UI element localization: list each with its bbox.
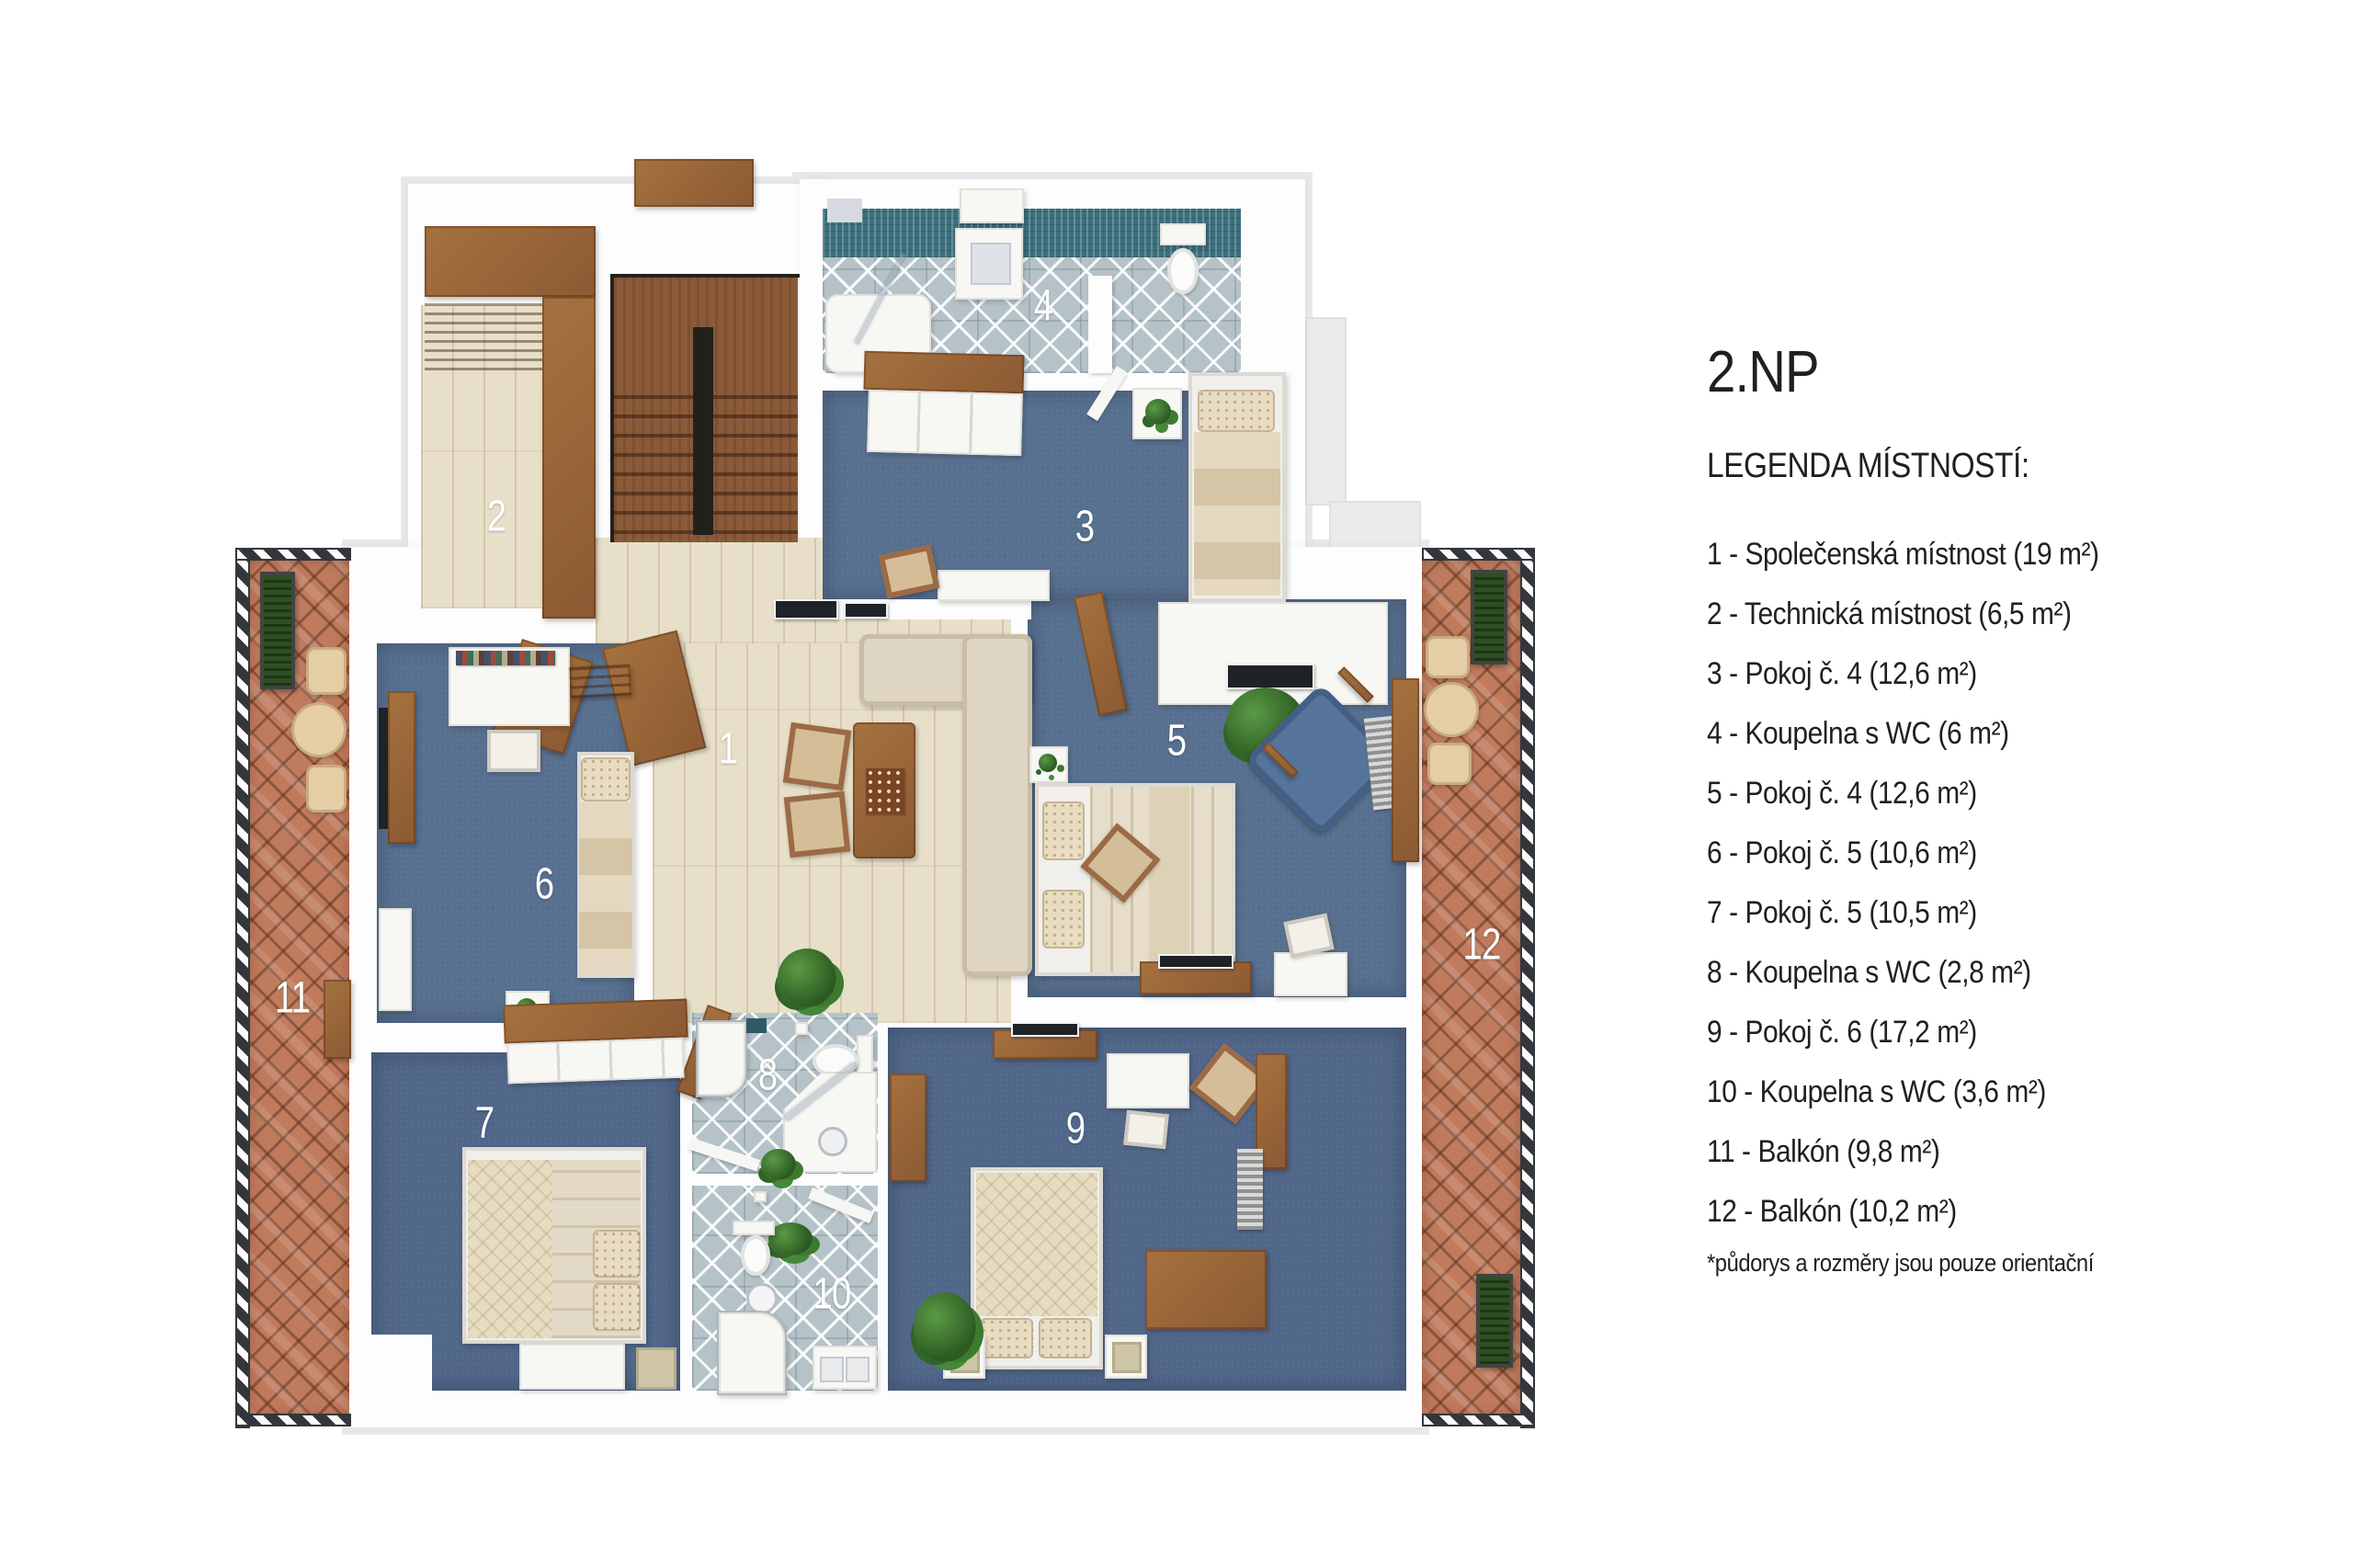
room-label-8: 8 <box>758 1051 778 1101</box>
toilet <box>1167 248 1199 294</box>
plant <box>1145 399 1171 425</box>
balcony-bench <box>324 980 351 1059</box>
wall <box>371 1335 432 1391</box>
page-title: 2.NP <box>1707 342 2099 401</box>
stair-railing <box>610 274 614 542</box>
legend-item-11: 11 - Balkón (9,8 m²) <box>1707 1122 2099 1182</box>
room-label-11: 11 <box>275 973 310 1024</box>
legend-item-1: 1 - Společenská místnost (19 m²) <box>1707 525 2099 585</box>
legend-item-4: 4 - Koupelna s WC (6 m²) <box>1707 704 2099 764</box>
room-label-2: 2 <box>487 492 506 542</box>
wardrobe <box>863 351 1024 394</box>
desk <box>1107 1053 1189 1108</box>
tv <box>844 602 888 619</box>
balcony-railing <box>235 1414 351 1426</box>
legend-item-2: 2 - Technická místnost (6,5 m²) <box>1707 585 2099 644</box>
plant <box>778 949 836 1007</box>
legend-item-6: 6 - Pokoj č. 5 (10,6 m²) <box>1707 824 2099 883</box>
room-label-10: 10 <box>813 1269 850 1320</box>
toilet-tank <box>1160 223 1206 245</box>
legend-item-3: 3 - Pokoj č. 4 (12,6 m²) <box>1707 644 2099 704</box>
room-label-1: 1 <box>719 724 738 775</box>
wardrobe-doors <box>506 1038 684 1085</box>
shower <box>717 1311 787 1395</box>
wall-cabinet <box>634 159 754 207</box>
stair-railing <box>693 327 713 535</box>
washbasin <box>846 1357 870 1382</box>
towel-rail <box>827 199 862 222</box>
balcony-railing <box>1422 1414 1535 1426</box>
floor-plan: 1 2 3 4 5 6 7 8 9 10 11 12 <box>0 0 1618 1568</box>
planter <box>1471 570 1507 665</box>
bed-pillow <box>593 1230 641 1278</box>
floor-mat <box>636 1347 676 1390</box>
storage-chest <box>1145 1250 1267 1329</box>
floorplan-page: 1 2 3 4 5 6 7 8 9 10 11 12 2.NP LEGENDA … <box>0 0 2353 1568</box>
room-label-5: 5 <box>1167 716 1187 767</box>
planter <box>260 572 295 689</box>
legend-item-12: 12 - Balkón (10,2 m²) <box>1707 1182 2099 1242</box>
round-table <box>291 702 347 757</box>
balcony-railing <box>1422 548 1535 561</box>
tv <box>1158 954 1233 969</box>
plant <box>761 1149 796 1180</box>
partition-wall <box>1088 276 1112 373</box>
game-board <box>866 768 904 814</box>
bed-duvet <box>1194 432 1280 596</box>
bed-duvet <box>468 1160 552 1338</box>
bed-pillow <box>1039 1318 1092 1358</box>
plant <box>768 1222 813 1256</box>
roof-step <box>1305 317 1347 506</box>
bed-duvet <box>976 1173 1097 1316</box>
bed-pillow <box>980 1318 1033 1358</box>
legend-panel: 2.NP LEGENDA MÍSTNOSTÍ: 1 - Společenská … <box>1707 342 2153 1278</box>
legend-item-7: 7 - Pokoj č. 5 (10,5 m²) <box>1707 883 2099 943</box>
dresser <box>379 908 412 1011</box>
tv <box>1226 664 1314 689</box>
towel-ring <box>754 1191 767 1202</box>
chair <box>784 791 851 858</box>
legend-item-8: 8 - Koupelna s WC (2,8 m²) <box>1707 943 2099 1003</box>
planter <box>1476 1274 1513 1368</box>
bed-throw <box>1149 787 1189 972</box>
floor-mat <box>1112 1342 1142 1373</box>
tv <box>1011 1022 1079 1037</box>
foot-cabinet <box>519 1344 625 1390</box>
sideboard <box>890 1074 926 1182</box>
bed-pillow <box>1042 801 1085 860</box>
balcony-railing <box>235 548 250 1428</box>
washbasin <box>820 1357 844 1382</box>
chair <box>487 730 540 772</box>
room-label-9: 9 <box>1066 1104 1086 1154</box>
tv-sideboard <box>388 691 415 844</box>
louver-shutter <box>1237 1149 1263 1230</box>
legend-item-5: 5 - Pokoj č. 4 (12,6 m²) <box>1707 764 2099 824</box>
desk <box>1274 952 1347 996</box>
legend-item-10: 10 - Koupelna s WC (3,6 m²) <box>1707 1062 2099 1122</box>
room-label-4: 4 <box>1034 281 1053 332</box>
bed-pillow <box>593 1283 641 1331</box>
room-label-3: 3 <box>1075 502 1095 552</box>
towel <box>746 1018 767 1033</box>
chair <box>783 722 852 791</box>
shower <box>696 1020 747 1097</box>
room-label-6: 6 <box>535 859 554 910</box>
wardrobe <box>542 297 596 619</box>
balcony-chair <box>1427 743 1472 785</box>
sofa <box>962 634 1032 976</box>
washbasin <box>971 243 1011 285</box>
plant <box>914 1292 976 1362</box>
bed-pillow <box>1042 890 1085 949</box>
toilet-tank <box>857 1035 873 1077</box>
bed-pillow <box>1198 390 1275 432</box>
chair <box>1123 1110 1169 1150</box>
balcony-chair <box>306 765 347 812</box>
legend-item-9: 9 - Pokoj č. 6 (17,2 m²) <box>1707 1003 2099 1062</box>
wardrobe-doors <box>867 390 1023 456</box>
desk <box>938 570 1050 601</box>
toilet <box>741 1235 770 1276</box>
balcony-door <box>1392 678 1419 862</box>
mirror <box>746 1283 778 1314</box>
towel-ring <box>795 1022 808 1035</box>
bed-duvet <box>579 801 632 974</box>
balcony-railing <box>235 548 351 561</box>
stair-railing <box>610 274 800 278</box>
balcony-railing <box>1520 548 1535 1428</box>
balcony-chair <box>306 647 347 695</box>
shelf-rack <box>425 297 542 370</box>
balcony-chair <box>1426 636 1470 678</box>
wardrobe <box>503 999 688 1044</box>
plant <box>1039 754 1057 772</box>
washbasin <box>818 1127 847 1156</box>
room-label-7: 7 <box>475 1098 494 1149</box>
round-table <box>1424 682 1479 737</box>
tv <box>379 708 388 829</box>
legend-heading: LEGENDA MÍSTNOSTÍ: <box>1707 447 2099 486</box>
wardrobe <box>425 226 596 297</box>
room-label-12: 12 <box>1462 920 1500 971</box>
shelf <box>960 188 1024 223</box>
toilet-tank <box>733 1221 775 1235</box>
books-row <box>456 651 555 665</box>
luggage-rack <box>569 664 631 698</box>
legend-footnote: *půdorys a rozměry jsou pouze orientační <box>1707 1249 2099 1278</box>
tv <box>774 599 838 619</box>
bed-pillow <box>581 757 631 801</box>
